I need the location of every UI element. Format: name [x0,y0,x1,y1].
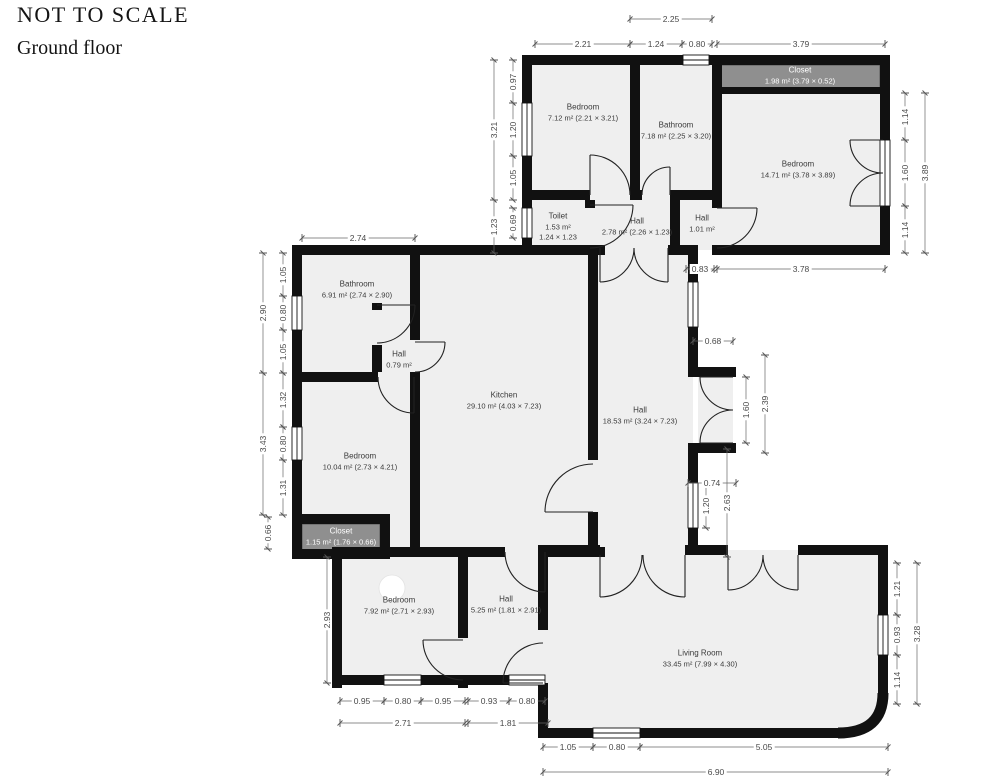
dimension-label: 2.90 [258,303,268,324]
dimension-label: 0.95 [352,696,373,706]
room-label-bedroom-bottom: Bedroom7.92 m² (2.71 × 2.93) [364,596,434,617]
dimension-label: 3.43 [258,434,268,455]
dimension-label: 1.14 [892,670,902,691]
dimension-label: 1.14 [900,220,910,241]
room-label-kitchen: Kitchen29.10 m² (4.03 × 7.23) [467,391,541,412]
dimension-label: 3.89 [920,163,930,184]
dimension-label: 1.05 [278,342,288,363]
dimension-label: 0.80 [393,696,414,706]
dimension-label: 0.80 [278,434,288,455]
room-label-hall-main: Hall18.53 m² (3.24 × 7.23) [603,406,677,427]
dimension-label: 1.21 [892,579,902,600]
dimension-label: 1.31 [278,478,288,499]
dimension-label: 2.63 [722,493,732,514]
dimension-label: 0.69 [508,213,518,234]
room-label-hall-bottom: Hall5.25 m² (1.81 × 2.91) [471,595,541,616]
dimension-label: 0.95 [433,696,454,706]
dimension-label: 0.74 [702,478,723,488]
dimension-label: 1.60 [900,163,910,184]
room-label-bathroom-top: Bathroom7.18 m² (2.25 × 3.20) [641,121,711,142]
dimension-label: 3.28 [912,624,922,645]
dimension-label: 2.71 [393,718,414,728]
floor-plan-page: NOT TO SCALE Ground floor Bedroom7.12 m²… [0,0,997,784]
dimension-label: 0.80 [517,696,538,706]
room-label-bathroom-left: Bathroom6.91 m² (2.74 × 2.90) [322,280,392,301]
dimension-label: 1.20 [701,496,711,517]
room-label-closet-top: Closet1.98 m² (3.79 × 0.52) [765,66,835,87]
dimension-label: 1.05 [508,168,518,189]
dimension-label: 6.90 [706,767,727,777]
dimension-label: 2.93 [322,610,332,631]
dimension-label: 1.14 [900,107,910,128]
room-label-bedroom-top-left: Bedroom7.12 m² (2.21 × 3.21) [548,103,618,124]
room-label-hall-inner: Hall0.79 m² [386,350,411,371]
dimension-label: 3.78 [791,264,812,274]
dimension-label: 0.80 [607,742,628,752]
dimension-label: 0.97 [508,72,518,93]
dimension-label: 2.74 [348,233,369,243]
dimension-label: 1.20 [508,120,518,141]
dimension-label: 1.23 [489,217,499,238]
room-label-bedroom-top-right: Bedroom14.71 m² (3.78 × 3.89) [761,160,835,181]
dimension-label: 5.05 [754,742,775,752]
room-label-closet-left: Closet1.15 m² (1.76 × 0.66) [306,527,376,548]
dimension-label: 0.80 [687,39,708,49]
dimension-label: 2.39 [760,394,770,415]
room-label-toilet: Toilet1.53 m²1.24 × 1.23 [539,211,577,242]
dimension-label: 2.21 [573,39,594,49]
dimension-label: 0.68 [703,336,724,346]
dimension-label: 0.83 [690,264,711,274]
dimension-label: 1.60 [741,400,751,421]
room-label-bedroom-left: Bedroom10.04 m² (2.73 × 4.21) [323,452,397,473]
dimension-label: 2.25 [661,14,682,24]
dimension-label: 1.32 [278,390,288,411]
dimension-label: 1.81 [498,718,519,728]
dimension-label: 1.05 [278,265,288,286]
room-label-living-room: Living Room33.45 m² (7.99 × 4.30) [663,649,737,670]
dimension-label: 3.21 [489,120,499,141]
room-label-hall-small: Hall1.01 m² [689,214,714,235]
dimension-label: 0.80 [278,303,288,324]
dimension-label: 0.93 [479,696,500,706]
dimension-label: 1.24 [646,39,667,49]
room-label-hall-top: Hall2.78 m² (2.26 × 1.23) [602,217,672,238]
dimension-label: 0.66 [263,523,273,544]
dimension-label: 0.93 [892,625,902,646]
dimension-label: 1.05 [558,742,579,752]
dimension-label: 3.79 [791,39,812,49]
